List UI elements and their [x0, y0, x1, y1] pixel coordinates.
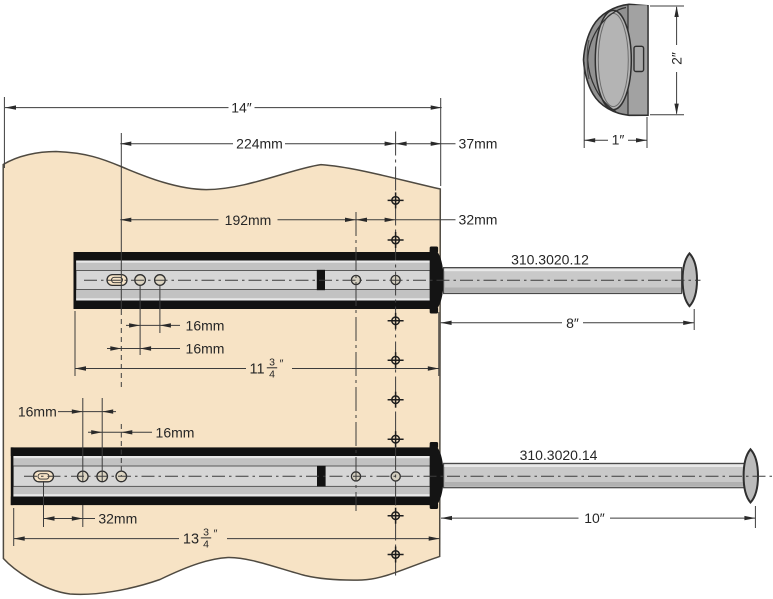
svg-text:4: 4	[269, 369, 275, 381]
svg-text:14″: 14″	[231, 100, 252, 116]
svg-text:32mm: 32mm	[459, 212, 498, 228]
svg-text:″: ″	[214, 528, 218, 540]
svg-text:2″: 2″	[669, 52, 685, 65]
svg-text:3: 3	[203, 527, 209, 539]
svg-text:13: 13	[183, 532, 199, 548]
svg-text:16mm: 16mm	[18, 404, 57, 420]
svg-text:32mm: 32mm	[98, 511, 137, 527]
svg-text:16mm: 16mm	[186, 341, 225, 357]
svg-text:″: ″	[280, 358, 284, 370]
svg-text:11: 11	[249, 362, 264, 378]
svg-text:192mm: 192mm	[225, 212, 272, 228]
svg-text:224mm: 224mm	[236, 136, 283, 152]
svg-text:16mm: 16mm	[156, 424, 195, 440]
svg-text:310.3020.14: 310.3020.14	[520, 447, 598, 463]
svg-text:4: 4	[203, 539, 209, 551]
svg-text:37mm: 37mm	[459, 136, 498, 152]
svg-text:1″: 1″	[612, 131, 625, 147]
svg-text:16mm: 16mm	[186, 317, 225, 333]
svg-text:310.3020.12: 310.3020.12	[511, 251, 589, 267]
svg-text:10″: 10″	[584, 510, 605, 526]
svg-text:3: 3	[269, 357, 275, 369]
svg-text:8″: 8″	[566, 315, 579, 331]
